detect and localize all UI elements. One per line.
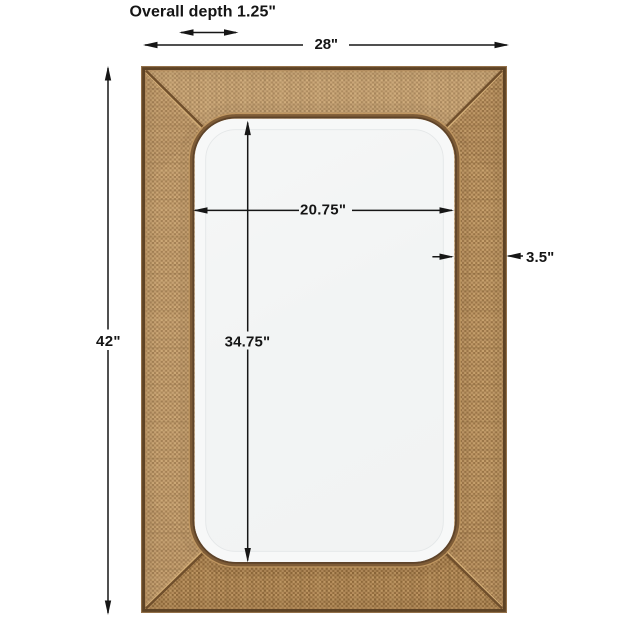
svg-text:20.75": 20.75" (300, 202, 346, 219)
svg-text:Overall depth 1.25": Overall depth 1.25" (130, 4, 277, 21)
svg-text:34.75": 34.75" (225, 333, 271, 350)
svg-text:3.5": 3.5" (526, 249, 554, 266)
svg-text:42": 42" (96, 333, 121, 350)
svg-text:28": 28" (315, 36, 339, 53)
